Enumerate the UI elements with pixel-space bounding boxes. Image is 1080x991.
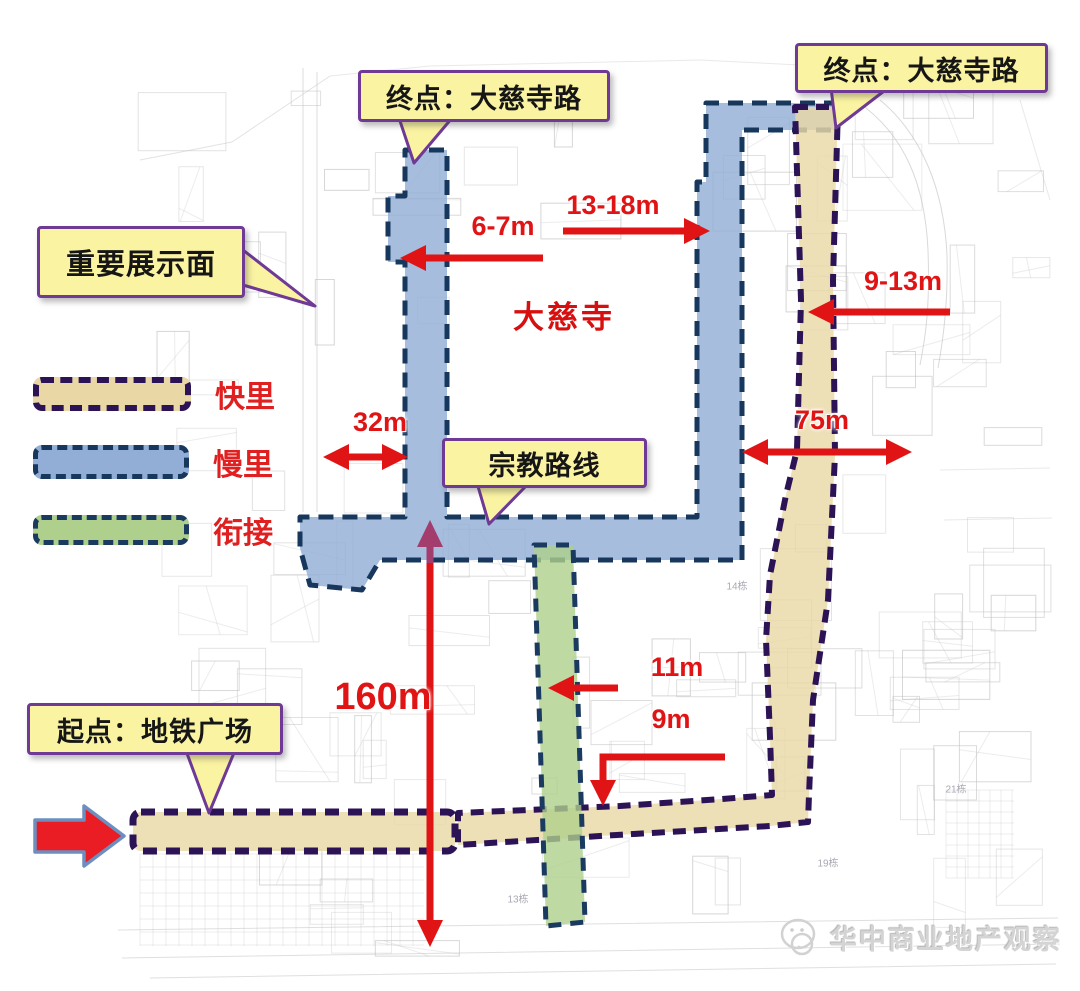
- legend-item-kuaili: 快里: [33, 372, 275, 416]
- callout-display-face: 重要展示面: [37, 226, 245, 298]
- manli-route-band: [300, 103, 838, 590]
- watermark: 华中商业地产观察: [778, 916, 1062, 958]
- measurement-label-east-block: 75m: [795, 405, 849, 436]
- measurement-label-south-lane: 9m: [651, 704, 690, 735]
- arrow-west-block: [323, 444, 408, 470]
- callout-end-west: 终点：大慈寺路: [358, 70, 610, 122]
- arrow-east-lane: [808, 299, 950, 325]
- arrow-north-lane: [563, 218, 710, 244]
- legend-swatch-kuaili: [33, 377, 191, 411]
- xianjie-route-band: [534, 545, 585, 926]
- curved-road: [880, 100, 947, 368]
- legend-item-xianjie: 衔接: [33, 508, 275, 552]
- legend-item-manli: 慢里: [33, 440, 275, 484]
- building-label: 21栋: [945, 781, 966, 796]
- callout-start: 起点：地铁广场: [27, 703, 283, 755]
- legend-label: 慢里: [213, 440, 273, 484]
- place-label-dacisi: 大慈寺: [513, 292, 615, 337]
- legend-swatch-manli: [33, 445, 189, 479]
- arrow-main-axis: [417, 520, 443, 947]
- measurement-label-west-block: 32m: [353, 407, 407, 438]
- callout-end-east: 终点：大慈寺路: [795, 43, 1048, 93]
- building-label: 14栋: [726, 578, 747, 593]
- watermark-text: 华中商业地产观察: [830, 918, 1062, 957]
- measurement-label-north-lane: 13-18m: [566, 190, 659, 221]
- callout-religious-route: 宗教路线: [442, 438, 647, 488]
- street-line: [140, 76, 330, 160]
- measurement-label-west-lane: 6-7m: [471, 211, 534, 242]
- start-direction-arrow: [35, 806, 124, 866]
- building-label: 19栋: [817, 855, 838, 870]
- callout-start-tail: [185, 748, 236, 813]
- arrow-west-lane: [400, 245, 543, 271]
- building-label: 13栋: [507, 891, 528, 906]
- legend-label: 衔接: [213, 508, 273, 552]
- site-plan: 终点：大慈寺路 终点：大慈寺路 重要展示面 宗教路线 起点：地铁广场 快里 慢里…: [0, 0, 1080, 991]
- callout-end-east-tail: [831, 88, 888, 128]
- measurement-label-east-lane: 9-13m: [864, 266, 942, 297]
- wechat-mascot-icon: [778, 916, 822, 958]
- measurement-label-main-axis: 160m: [334, 676, 431, 719]
- legend-swatch-xianjie: [33, 515, 189, 545]
- legend-label: 快里: [215, 372, 275, 416]
- kuaili-route-start-segment: [133, 812, 455, 851]
- legend: 快里 慢里 衔接: [33, 372, 275, 576]
- street-line: [940, 100, 1052, 520]
- measurement-label-link-lane: 11m: [651, 652, 704, 683]
